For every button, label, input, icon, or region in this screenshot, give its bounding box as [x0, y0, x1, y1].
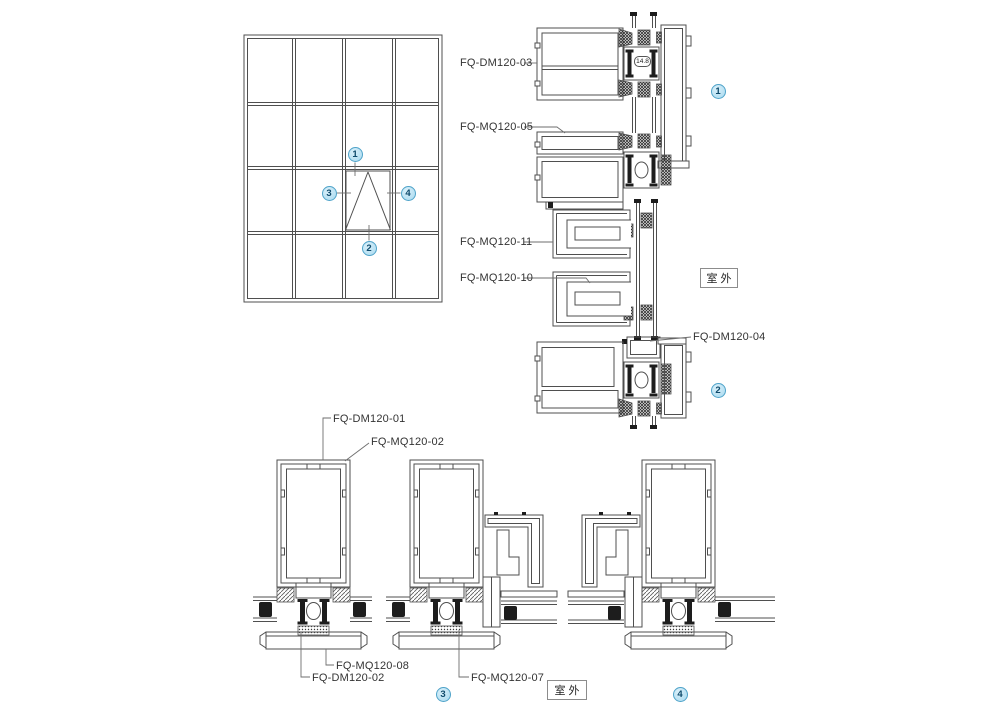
plan-detail-fixed-mullion [253, 460, 372, 649]
label-fq-mq120-07: FQ-MQ120-07 [471, 672, 544, 684]
section-detail-1-transom [535, 12, 691, 168]
plan-label-leaders [301, 418, 469, 677]
label-fq-dm120-01: FQ-DM120-01 [333, 413, 406, 425]
label-fq-mq120-11: FQ-MQ120-11 [460, 236, 532, 248]
label-fq-dm120-04: FQ-DM120-04 [693, 331, 766, 343]
vent-opening-symbol [346, 171, 391, 230]
label-fq-dm120-03: FQ-DM120-03 [460, 57, 533, 69]
label-fq-mq120-05: FQ-MQ120-05 [460, 121, 533, 133]
callout-elevation-1: 1 [348, 147, 363, 162]
callout-elevation-4: 4 [401, 186, 416, 201]
outdoor-box-bottom: 室外 [547, 680, 587, 700]
dimension-14-8: 14.8 [634, 56, 651, 67]
callout-detail-2: 2 [711, 383, 726, 398]
section-linework [0, 0, 1000, 714]
callout-elevation-3: 3 [322, 186, 337, 201]
plan-detail-3-vent-mullion [386, 460, 557, 649]
label-fq-mq120-10: FQ-MQ120-10 [460, 272, 533, 284]
label-fq-mq120-02: FQ-MQ120-02 [371, 436, 444, 448]
section-detail-2-mullion-top [535, 132, 671, 209]
callout-detail-4: 4 [673, 687, 688, 702]
outdoor-box-top: 室外 [700, 268, 738, 288]
callout-detail-1: 1 [711, 84, 726, 99]
section-detail-mq11-mq10 [553, 199, 658, 340]
callout-elevation-2: 2 [362, 241, 377, 256]
label-fq-mq120-08: FQ-MQ120-08 [336, 660, 409, 672]
callout-detail-3: 3 [436, 687, 451, 702]
technical-drawing-page: FQ-DM120-03 FQ-MQ120-05 FQ-MQ120-11 FQ-M… [0, 0, 1000, 714]
label-fq-dm120-02: FQ-DM120-02 [312, 672, 385, 684]
plan-detail-4-vent-mullion [568, 460, 775, 649]
elevation-grid [244, 35, 442, 302]
section-detail-4-sill [535, 337, 691, 429]
